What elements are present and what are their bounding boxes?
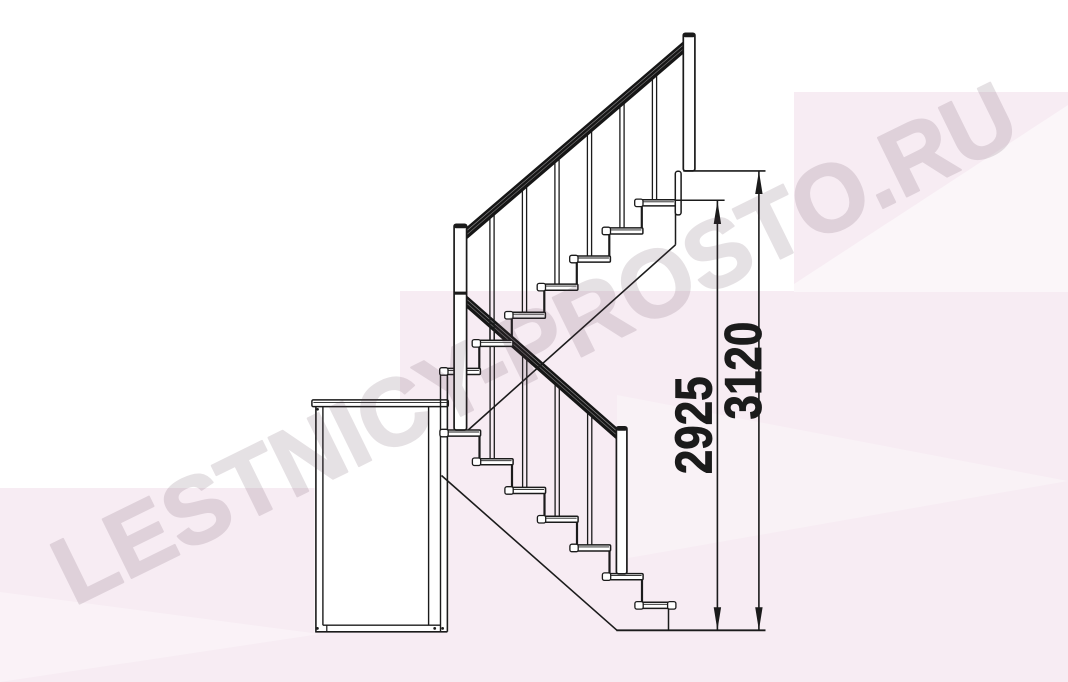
svg-text:3120: 3120 (716, 322, 773, 420)
